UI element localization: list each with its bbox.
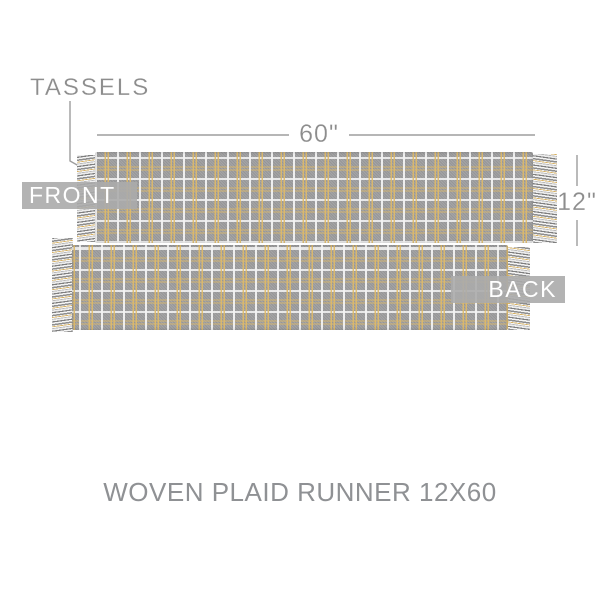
runner-front-view	[77, 150, 557, 245]
product-title: WOVEN PLAID RUNNER 12X60	[0, 477, 600, 508]
tassels-label: TASSELS	[30, 74, 150, 102]
runner-front-fabric	[95, 152, 533, 243]
runner-back-fabric	[72, 245, 508, 330]
width-dimension-label: 60"	[291, 120, 347, 149]
runner-back-left-tassels	[52, 238, 73, 332]
runner-front-right-tassels	[533, 154, 557, 243]
front-badge: FRONT	[22, 182, 137, 209]
product-dimension-diagram: TASSELS 60" 12" FRONT BACK WOVEN PLAID R…	[0, 0, 600, 600]
height-dimension-label: 12"	[553, 188, 600, 217]
back-badge: BACK	[451, 276, 565, 303]
